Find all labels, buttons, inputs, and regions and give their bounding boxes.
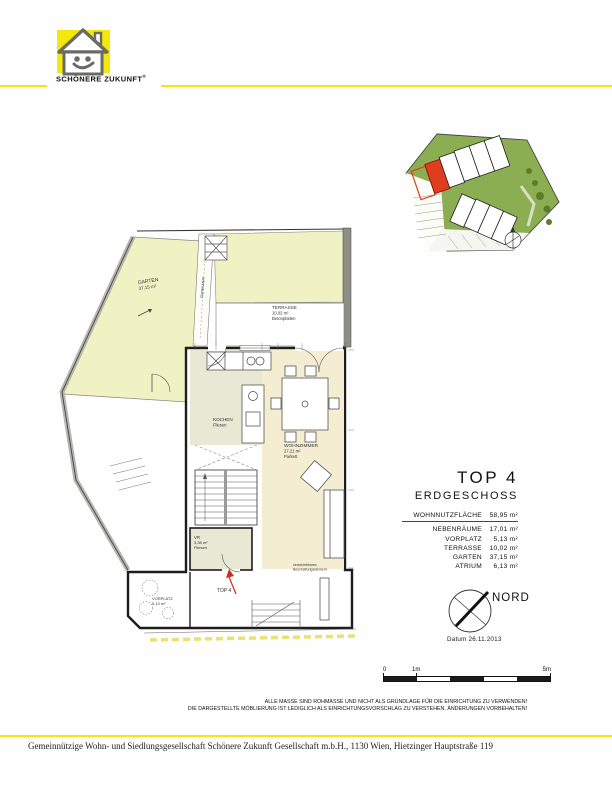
area-value: 37,15 m² xyxy=(482,553,518,562)
area-value: 17,01 m² xyxy=(482,525,518,534)
kitchen-label: KOCHEN xyxy=(213,417,233,422)
unit-title: TOP 4 xyxy=(402,468,518,488)
vorplatz-area-label: 5,13 m² xyxy=(152,601,166,606)
unit-entrance-label: TOP 4 xyxy=(217,588,231,594)
livingroom-door-opening xyxy=(295,345,343,351)
area-value: 5,13 m² xyxy=(482,535,518,544)
terrace-label: TERRASSE xyxy=(272,305,297,310)
area-label: ATRIUM xyxy=(455,562,482,571)
kitchen-door-opening xyxy=(208,345,226,351)
area-label: VORPLATZ xyxy=(445,535,482,544)
kitchen-finish-label: Fliesen xyxy=(213,423,227,428)
footer-company-line: Gemeinnützige Wohn- und Siedlungsgesells… xyxy=(28,741,568,751)
footer-rule xyxy=(0,735,612,737)
area-label: GARTEN xyxy=(453,553,482,562)
disclaimer: ALLE MASSE SIND ROHMASSE UND NICHT ALS G… xyxy=(125,699,527,713)
bottom-hatch-strip xyxy=(150,636,356,640)
area-row: VORPLATZ 5,13 m² xyxy=(402,535,518,544)
staircase xyxy=(195,470,257,525)
scale-tick-labels: 0 1m 5m xyxy=(383,667,551,675)
exterior-steps xyxy=(110,458,151,490)
floor-plan: GARTEN 37,15 m² TERRASSE 10,02 m² Betonp… xyxy=(62,228,356,640)
north-compass-icon xyxy=(449,590,491,632)
area-value: 6,13 m² xyxy=(482,562,518,571)
area-label: NEBENRÄUME xyxy=(432,525,482,534)
vr-finish-label: Fliesen xyxy=(194,545,207,550)
upper-garden-strip xyxy=(214,231,345,303)
disclaimer-line-2: DIE DARGESTELLTE MÖBLIERUNG IST LEDIGLIC… xyxy=(125,706,527,713)
terrace-area-label: 10,02 m² xyxy=(272,311,289,316)
scale-segment xyxy=(384,677,417,681)
bottom-boundary xyxy=(144,629,356,633)
area-value: 58,95 m² xyxy=(482,511,518,520)
scale-segment xyxy=(417,677,450,681)
area-row: NEBENRÄUME 17,01 m² xyxy=(402,525,518,534)
north-label: NORD xyxy=(492,592,530,604)
terrace-finish-label: Betonplatten xyxy=(272,316,296,321)
area-table: WOHNNUTZFLÄCHE 58,95 m² NEBENRÄUME 17,01… xyxy=(402,511,518,572)
unit-info-block: TOP 4 ERDGESCHOSS WOHNNUTZFLÄCHE 58,95 m… xyxy=(402,468,518,572)
shading-label-1: verschiebbares xyxy=(293,563,317,567)
shading-label-2: Beschattungselement xyxy=(293,568,327,572)
storage-door xyxy=(320,578,329,620)
livingroom-area-label: 27,21 m² xyxy=(284,449,301,454)
area-row: WOHNNUTZFLÄCHE 58,95 m² xyxy=(402,511,518,522)
scale-segment xyxy=(450,677,483,681)
disclaimer-line-1: ALLE MASSE SIND ROHMASSE UND NICHT ALS G… xyxy=(125,699,527,706)
date-label: Datum 26.11.2013 xyxy=(447,636,502,643)
top-steps xyxy=(205,236,227,260)
page: SCHÖNERE ZUKUNFT® xyxy=(0,0,612,792)
scale-bar: 0 1m 5m xyxy=(383,667,551,687)
site-plan xyxy=(406,134,559,251)
area-row: TERRASSE 10,02 m² xyxy=(402,544,518,553)
scale-segment xyxy=(517,677,550,681)
area-label: WOHNNUTZFLÄCHE xyxy=(413,511,482,520)
scale-bar-segments xyxy=(383,676,551,682)
area-row: GARTEN 37,15 m² xyxy=(402,553,518,562)
area-row: ATRIUM 6,13 m² xyxy=(402,562,518,571)
area-value: 10,02 m² xyxy=(482,544,518,553)
scale-segment xyxy=(484,677,517,681)
plan-top-boundary xyxy=(137,229,344,231)
area-label: TERRASSE xyxy=(444,544,482,553)
livingroom-finish-label: Parkett xyxy=(284,454,298,459)
floor-title: ERDGESCHOSS xyxy=(402,490,518,502)
garden-area xyxy=(63,237,201,402)
